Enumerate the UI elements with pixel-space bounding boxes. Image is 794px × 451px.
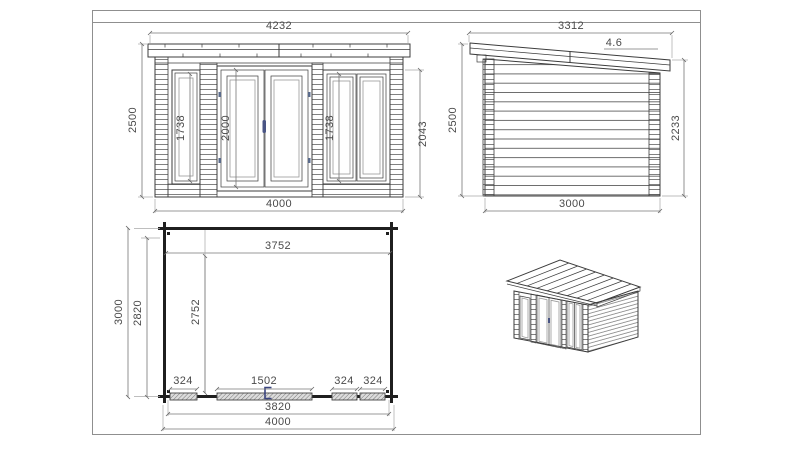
plan-window-mid bbox=[332, 393, 357, 400]
door-hinge-icon bbox=[308, 92, 311, 97]
log-strip-right bbox=[390, 57, 403, 197]
dim-front-height: 2500 bbox=[127, 107, 139, 133]
dim-front-door-height: 2000 bbox=[220, 115, 232, 141]
iso-side-wall bbox=[588, 291, 638, 352]
side-wall bbox=[483, 59, 660, 196]
dim-side-roof-slope: 4.6 bbox=[606, 37, 623, 49]
dim-front-wall-height-right: 2043 bbox=[417, 121, 429, 147]
side-elevation-view: 3312 4.6 2500 2233 3000 bbox=[447, 20, 688, 213]
dim-front-window-right-height: 1738 bbox=[324, 115, 336, 141]
dim-plan-window-right-width: 324 bbox=[363, 375, 383, 387]
log-strip-left bbox=[155, 57, 168, 197]
plan-window-right bbox=[360, 393, 385, 400]
iso-front-facade bbox=[514, 291, 588, 352]
side-corner-post-right bbox=[649, 73, 660, 196]
floor-plan-view: 3752 2752 3000 2820 324 1502 324 324 382… bbox=[113, 222, 398, 431]
door-hinge-icon bbox=[219, 92, 222, 97]
isometric-view bbox=[507, 260, 640, 352]
dim-side-roof-length: 3312 bbox=[558, 20, 584, 32]
dim-plan-base-width: 3820 bbox=[265, 401, 291, 413]
plan-window-left bbox=[170, 393, 197, 400]
dim-front-overall-width: 4232 bbox=[266, 20, 292, 32]
dim-plan-window-mid-width: 324 bbox=[334, 375, 354, 387]
dim-plan-depth-overall: 3000 bbox=[113, 299, 125, 325]
plan-dimensions: 3752 2752 3000 2820 324 1502 324 324 382… bbox=[113, 228, 394, 431]
dim-side-depth: 3000 bbox=[559, 198, 585, 210]
dim-plan-inner-width: 3752 bbox=[265, 240, 291, 252]
dim-plan-overall-width: 4000 bbox=[265, 416, 291, 428]
log-strip-mid-right bbox=[312, 63, 323, 197]
dim-plan-door-width: 1502 bbox=[251, 375, 277, 387]
front-roof-fascia bbox=[148, 44, 410, 57]
dim-plan-window-left-width: 324 bbox=[173, 375, 193, 387]
technical-drawing: 4232 2500 1738 2000 1738 2043 4000 bbox=[0, 0, 794, 446]
door-hinge-icon bbox=[308, 158, 311, 163]
front-elevation-view: 4232 2500 1738 2000 1738 2043 4000 bbox=[127, 20, 429, 213]
iso-door-handle bbox=[548, 318, 550, 323]
dim-plan-inner-depth: 2752 bbox=[190, 299, 202, 325]
dim-side-height-front: 2500 bbox=[447, 107, 459, 133]
side-corner-post-left bbox=[483, 59, 494, 196]
door-hinge-icon bbox=[219, 158, 222, 163]
dim-front-window-left-height: 1738 bbox=[175, 115, 187, 141]
dim-front-wall-width: 4000 bbox=[266, 198, 292, 210]
drawing-sheet: 4232 2500 1738 2000 1738 2043 4000 bbox=[0, 0, 794, 446]
dim-plan-depth-wall: 2820 bbox=[132, 300, 144, 326]
dim-side-height-back: 2233 bbox=[670, 115, 682, 141]
log-strip-mid-left bbox=[200, 63, 217, 197]
door-handle bbox=[263, 120, 267, 133]
